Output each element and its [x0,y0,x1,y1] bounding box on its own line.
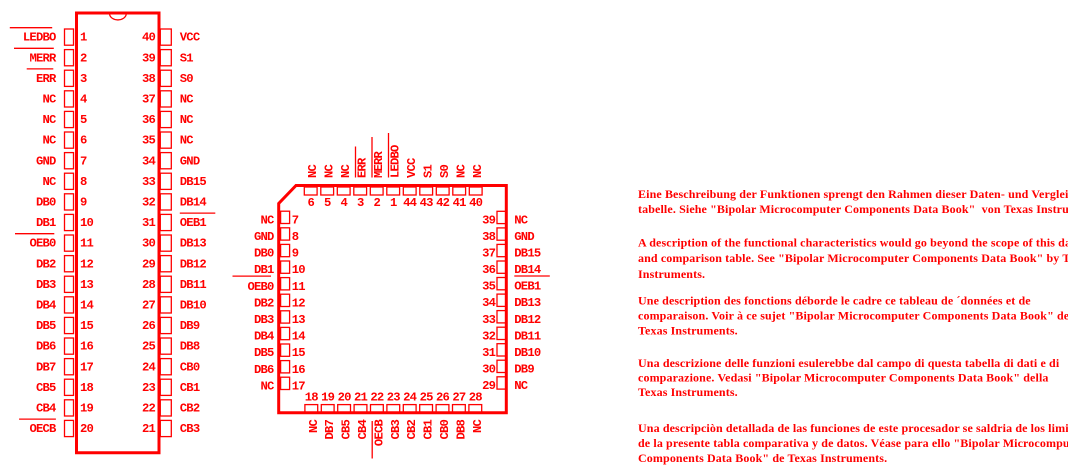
svg-text:23: 23 [142,381,156,395]
svg-text:37: 37 [142,93,156,107]
svg-text:22: 22 [142,402,156,416]
svg-text:20: 20 [338,390,352,404]
svg-text:and comparison table. See "Bip: and comparison table. See "Bipolar Micro… [638,251,1068,265]
svg-text:3: 3 [80,72,87,86]
svg-text:NC: NC [180,134,194,148]
svg-text:Components Data Book" de Texas: Components Data Book" de Texas Instrumen… [638,451,887,465]
svg-text:DB5: DB5 [36,319,56,333]
svg-text:38: 38 [482,230,496,244]
svg-text:NC: NC [514,214,528,228]
svg-text:CB5: CB5 [36,381,56,395]
svg-text:20: 20 [80,422,94,436]
svg-text:MERR: MERR [372,150,386,178]
svg-text:S0: S0 [180,72,194,86]
svg-text:Una descrizione delle funzioni: Una descrizione delle funzioni esulerebb… [638,356,1060,370]
svg-text:NC: NC [42,113,56,127]
svg-text:VCC: VCC [405,158,419,178]
svg-text:14: 14 [80,299,94,313]
svg-text:DB8: DB8 [180,340,200,354]
svg-text:11: 11 [292,280,306,294]
svg-text:33: 33 [482,313,496,327]
svg-text:4: 4 [340,196,347,210]
svg-text:25: 25 [142,340,156,354]
svg-text:DB3: DB3 [254,313,274,327]
svg-text:32: 32 [482,329,496,343]
svg-text:42: 42 [436,196,450,210]
svg-text:21: 21 [354,390,368,404]
svg-text:DB2: DB2 [254,296,274,310]
svg-text:CB0: CB0 [438,420,452,440]
svg-text:VCC: VCC [180,31,200,45]
svg-text:37: 37 [482,247,496,261]
svg-text:de la presente tabla comparati: de la presente tabla comparativa y de da… [638,436,1068,450]
svg-text:DB1: DB1 [36,216,56,230]
svg-text:LEDBO: LEDBO [389,145,403,178]
svg-text:12: 12 [292,296,306,310]
svg-text:NC: NC [260,213,274,227]
svg-text:DB10: DB10 [514,346,541,360]
svg-text:DB15: DB15 [180,175,207,189]
svg-text:DB13: DB13 [180,237,207,251]
svg-text:14: 14 [292,330,306,344]
svg-text:CB2: CB2 [405,420,419,440]
svg-text:17: 17 [80,360,94,374]
svg-text:CB1: CB1 [422,420,436,440]
svg-text:19: 19 [80,402,94,416]
svg-text:43: 43 [420,196,434,210]
svg-text:3: 3 [357,196,364,210]
svg-text:2: 2 [80,51,87,65]
svg-text:30: 30 [142,237,156,251]
svg-text:10: 10 [292,263,306,277]
svg-text:NC: NC [471,420,485,434]
svg-text:Texas Instruments.: Texas Instruments. [638,323,738,337]
svg-text:26: 26 [436,390,450,404]
svg-text:Eine Beschreibung der Funktion: Eine Beschreibung der Funktionen sprengt… [638,187,1068,201]
svg-text:NC: NC [514,379,528,393]
svg-text:DB4: DB4 [36,299,56,313]
svg-text:32: 32 [142,196,156,210]
svg-text:18: 18 [80,381,94,395]
svg-text:38: 38 [142,72,156,86]
svg-text:Una descripciòn detallada de l: Una descripciòn detallada de las funcion… [638,421,1068,435]
svg-text:16: 16 [292,363,306,377]
svg-text:31: 31 [142,216,156,230]
svg-text:DB12: DB12 [514,313,541,327]
svg-text:S1: S1 [180,51,194,65]
svg-text:1: 1 [80,31,87,45]
svg-text:DB9: DB9 [180,319,200,333]
svg-text:DB8: DB8 [454,420,468,440]
svg-text:34: 34 [482,296,496,310]
svg-text:22: 22 [370,390,384,404]
svg-text:ERR: ERR [36,72,57,86]
svg-text:GND: GND [254,230,274,244]
svg-text:5: 5 [80,113,87,127]
svg-text:9: 9 [292,247,299,261]
svg-text:5: 5 [324,196,331,210]
svg-text:NC: NC [306,164,320,178]
svg-text:OEB1: OEB1 [514,280,541,294]
svg-text:CB4: CB4 [36,402,56,416]
svg-text:35: 35 [142,134,156,148]
svg-text:S0: S0 [438,164,452,178]
svg-text:CB2: CB2 [180,402,200,416]
svg-text:8: 8 [80,175,87,189]
svg-text:ERR: ERR [356,157,370,178]
svg-text:NC: NC [455,164,469,178]
svg-text:11: 11 [80,237,94,251]
svg-text:44: 44 [403,196,417,210]
svg-text:2: 2 [373,196,380,210]
svg-text:CB1: CB1 [180,381,200,395]
svg-text:DB12: DB12 [180,257,207,271]
svg-text:DB11: DB11 [180,278,207,292]
svg-text:23: 23 [387,390,401,404]
svg-text:25: 25 [420,390,434,404]
svg-text:13: 13 [80,278,94,292]
svg-text:OECB: OECB [29,422,57,436]
svg-text:27: 27 [452,390,466,404]
svg-text:DB5: DB5 [254,346,274,360]
svg-text:28: 28 [469,390,483,404]
svg-text:DB9: DB9 [514,362,534,376]
svg-text:13: 13 [292,313,306,327]
svg-text:12: 12 [80,257,94,271]
svg-text:DB7: DB7 [323,420,337,440]
svg-text:NC: NC [42,93,56,107]
svg-text:41: 41 [453,196,467,210]
svg-text:Une description des fonctions: Une description des fonctions déborde le… [638,294,1031,308]
svg-text:29: 29 [142,257,156,271]
svg-text:DB4: DB4 [254,330,274,344]
svg-text:DB10: DB10 [180,299,207,313]
svg-text:34: 34 [142,154,156,168]
svg-text:NC: NC [260,379,274,393]
svg-text:GND: GND [36,154,56,168]
svg-text:CB3: CB3 [389,420,403,440]
svg-text:comparazione. Vedasi "Bipolar: comparazione. Vedasi "Bipolar Microcompu… [638,370,1049,384]
svg-text:DB1: DB1 [254,263,274,277]
svg-text:NC: NC [323,164,337,178]
svg-text:6: 6 [80,134,87,148]
svg-text:DB11: DB11 [514,329,541,343]
svg-text:Instruments.: Instruments. [638,267,705,281]
svg-text:DB3: DB3 [36,278,56,292]
svg-text:39: 39 [142,51,156,65]
svg-text:28: 28 [142,278,156,292]
svg-text:16: 16 [80,340,94,354]
svg-text:10: 10 [80,216,94,230]
svg-text:39: 39 [482,214,496,228]
svg-text:6: 6 [307,196,314,210]
svg-text:NC: NC [307,420,321,434]
svg-text:33: 33 [142,175,156,189]
svg-text:21: 21 [142,422,156,436]
svg-text:GND: GND [180,154,200,168]
svg-text:CB0: CB0 [180,360,200,374]
svg-text:MERR: MERR [29,51,57,65]
svg-text:36: 36 [142,113,156,127]
svg-text:CB5: CB5 [340,420,354,440]
svg-text:8: 8 [292,230,299,244]
svg-text:24: 24 [403,390,417,404]
svg-text:30: 30 [482,362,496,376]
svg-text:OECB: OECB [372,419,386,447]
svg-text:CB4: CB4 [356,420,370,440]
svg-text:29: 29 [482,379,496,393]
svg-text:LEDBO: LEDBO [23,31,56,45]
svg-text:DB14: DB14 [180,196,207,210]
svg-text:1: 1 [390,196,397,210]
svg-text:DB6: DB6 [36,340,56,354]
svg-text:DB14: DB14 [514,263,541,277]
svg-text:tabelle. Siehe "Bipolar Microc: tabelle. Siehe "Bipolar Microcomputer Co… [638,202,1068,216]
svg-text:CB3: CB3 [180,422,200,436]
svg-text:7: 7 [80,154,87,168]
svg-text:31: 31 [482,346,496,360]
svg-text:DB15: DB15 [514,247,541,261]
svg-text:NC: NC [471,164,485,178]
svg-text:NC: NC [180,113,194,127]
svg-text:OEB1: OEB1 [180,216,207,230]
svg-text:DB0: DB0 [36,196,56,210]
svg-text:DB2: DB2 [36,257,56,271]
svg-text:OEB0: OEB0 [247,280,274,294]
svg-text:36: 36 [482,263,496,277]
svg-text:17: 17 [292,379,306,393]
svg-text:A description of the functiona: A description of the functional characte… [638,235,1068,249]
svg-text:GND: GND [514,230,534,244]
svg-text:7: 7 [292,213,299,227]
svg-text:NC: NC [180,93,194,107]
svg-text:S1: S1 [422,164,436,178]
svg-text:comparaison. Voir à ce sujet ": comparaison. Voir à ce sujet "Bipolar Mi… [638,309,1068,323]
svg-text:19: 19 [321,390,335,404]
svg-text:9: 9 [80,196,87,210]
svg-text:NC: NC [42,175,56,189]
svg-text:OEB0: OEB0 [29,237,56,251]
svg-text:DB0: DB0 [254,247,274,261]
svg-text:24: 24 [142,360,156,374]
svg-text:4: 4 [80,93,87,107]
svg-text:Texas Instruments.: Texas Instruments. [638,385,738,399]
svg-text:NC: NC [339,164,353,178]
svg-text:40: 40 [469,196,483,210]
svg-text:27: 27 [142,299,156,313]
svg-text:40: 40 [142,31,156,45]
svg-text:DB7: DB7 [36,360,56,374]
svg-text:26: 26 [142,319,156,333]
svg-text:15: 15 [80,319,94,333]
svg-text:DB6: DB6 [254,363,274,377]
svg-text:DB13: DB13 [514,296,541,310]
svg-text:15: 15 [292,346,306,360]
svg-text:35: 35 [482,280,496,294]
svg-text:NC: NC [42,134,56,148]
svg-text:18: 18 [305,390,319,404]
